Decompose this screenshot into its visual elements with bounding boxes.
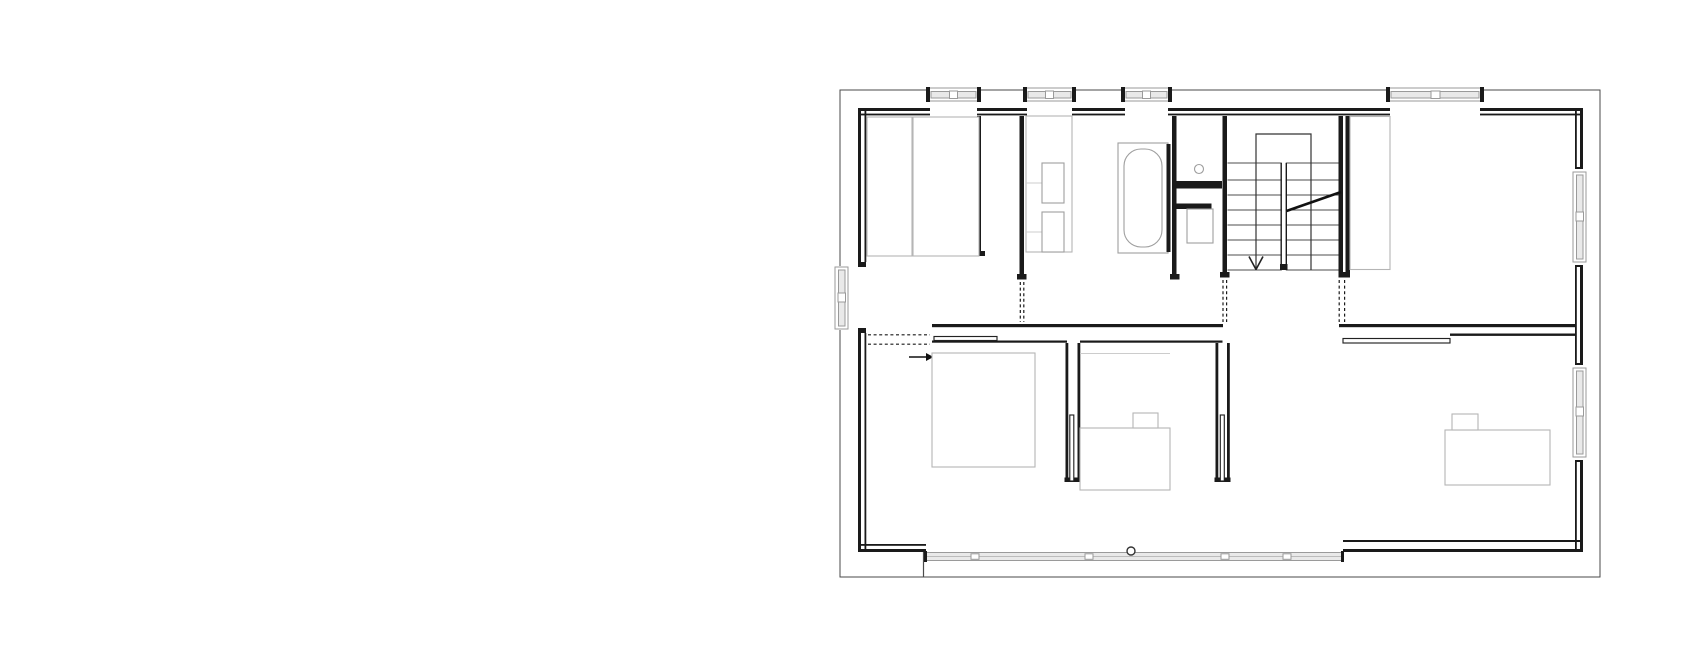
- bottom-rooms-furniture: [932, 353, 1550, 490]
- wall-bathroom-west: [1020, 116, 1025, 276]
- washbasin-icon: [1042, 163, 1064, 203]
- facade-circle-marker: [1127, 547, 1135, 555]
- staircase: [1228, 134, 1342, 272]
- bathroom-niche-wall: [1177, 204, 1212, 210]
- entry-arrow-icon: [909, 353, 934, 361]
- wardrobe: [1350, 117, 1390, 270]
- wardrobe: [913, 117, 979, 256]
- floor-plan-canvas: [0, 0, 1684, 662]
- toilet-icon: [1187, 209, 1213, 243]
- stair-divider-cap: [1280, 264, 1288, 270]
- sliding-door-leaf: [934, 337, 997, 341]
- wall-bathroom-east: [1172, 116, 1177, 276]
- desk: [1080, 428, 1170, 490]
- stair-divider-core: [1282, 162, 1286, 272]
- desk: [1445, 430, 1550, 485]
- south-glazing-band: [924, 547, 1344, 562]
- washbasin-icon: [1042, 212, 1064, 252]
- wall-stair-west: [1223, 116, 1228, 274]
- sliding-door-leaf: [1220, 415, 1224, 481]
- wall-stair-east: [1339, 116, 1344, 274]
- bed: [932, 353, 1035, 467]
- bathtub-side-wall: [1167, 144, 1171, 252]
- chair: [1133, 413, 1158, 428]
- dressing-room-furniture: [867, 117, 979, 256]
- chair: [1452, 414, 1478, 430]
- sliding-door-leaf: [1343, 339, 1450, 344]
- wardrobe: [867, 117, 912, 256]
- sliding-door-leaf: [1070, 415, 1074, 481]
- wall-bedroom-east-west-face: [1346, 116, 1351, 274]
- floor-plan-drawing: [0, 0, 1684, 662]
- bathtub-icon: [1124, 149, 1162, 247]
- left-wall-window: [832, 266, 851, 330]
- dashed-openings: [1020, 280, 1344, 322]
- bathroom-counter-wall: [1177, 181, 1223, 189]
- top-wall-windows: [926, 85, 1484, 104]
- bathroom: [1026, 116, 1222, 253]
- ceiling-light-icon: [1195, 165, 1204, 174]
